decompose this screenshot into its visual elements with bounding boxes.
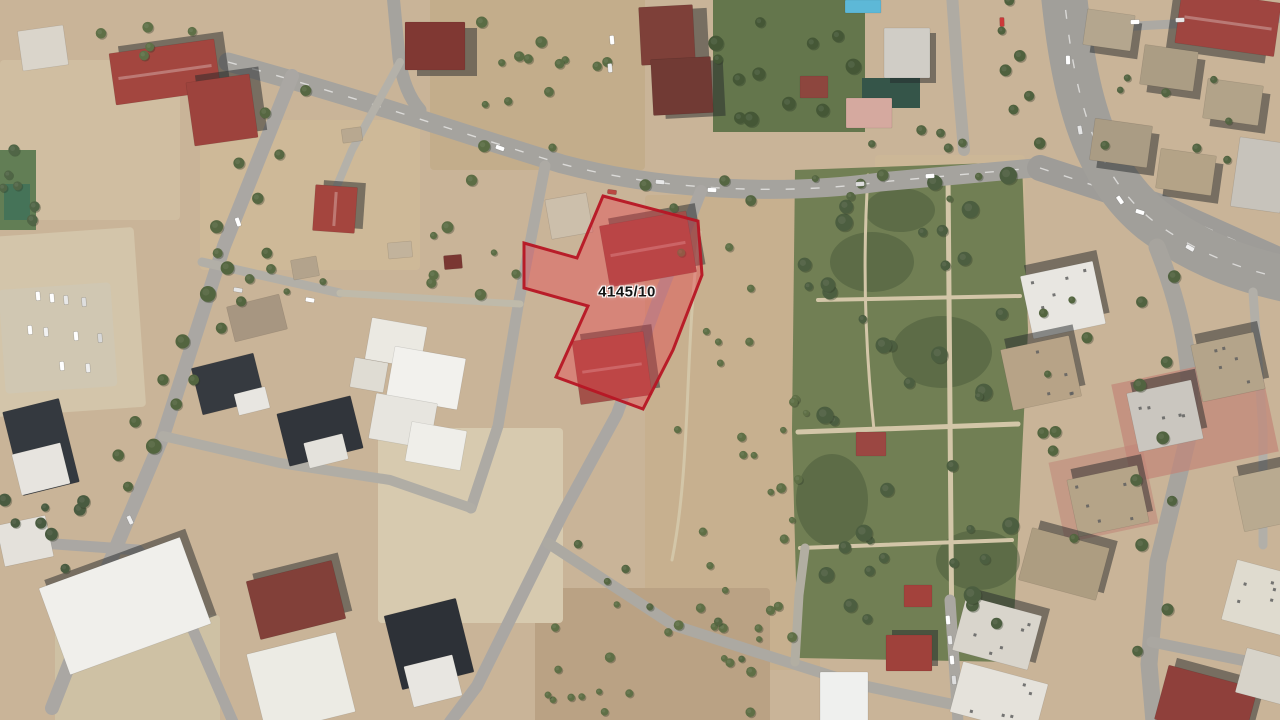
map-viewport[interactable]: 4145/10 <box>0 0 1280 720</box>
parcel-label: 4145/10 <box>598 284 656 301</box>
